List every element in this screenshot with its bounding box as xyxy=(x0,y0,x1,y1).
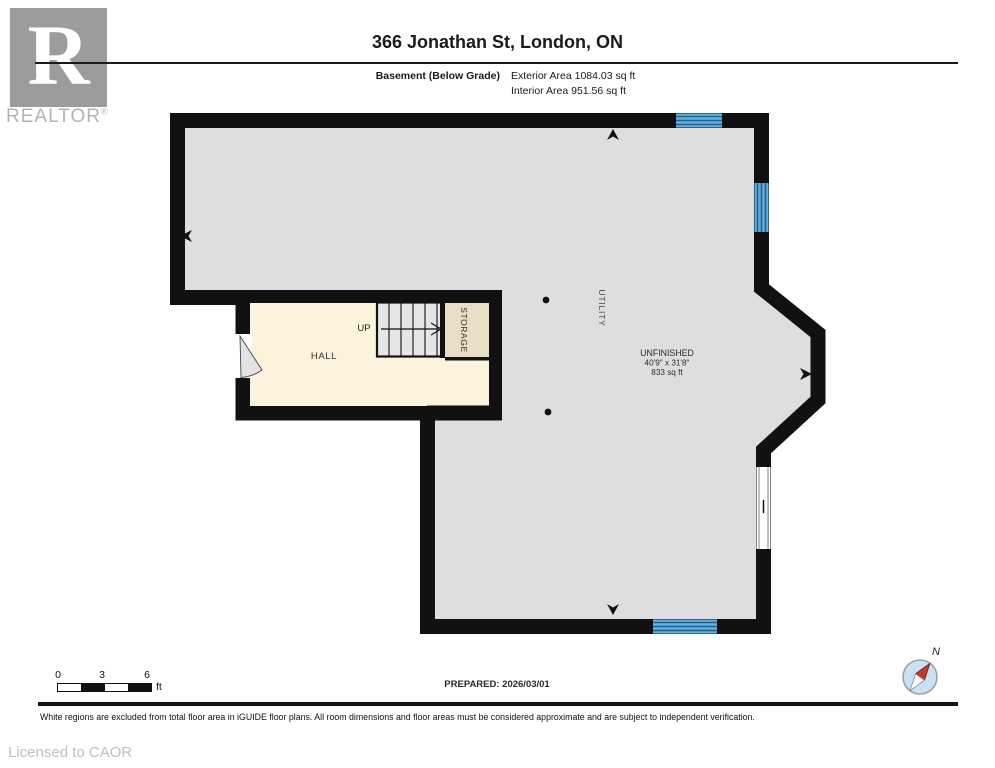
scale-bar xyxy=(57,683,152,692)
scale-unit: ft xyxy=(156,681,162,693)
realtor-logo: R xyxy=(10,8,107,107)
exterior-area: Exterior Area 1084.03 sq ft xyxy=(511,70,635,82)
page-title: 366 Jonathan St, London, ON xyxy=(0,32,995,53)
staircase xyxy=(377,303,447,357)
compass-north-label: N xyxy=(932,646,940,658)
interior-area: Interior Area 951.56 sq ft xyxy=(511,85,626,97)
label-utility: UTILITY xyxy=(597,289,607,326)
scale-segment xyxy=(58,684,81,691)
scale-tick-6: 6 xyxy=(142,669,152,681)
window-right-upper xyxy=(755,183,769,232)
compass: N xyxy=(897,644,947,698)
scale-segment xyxy=(128,684,151,691)
prepared-date: PREPARED: 2026/03/01 xyxy=(397,679,597,690)
realtor-wordmark-text: REALTOR xyxy=(6,106,101,127)
label-unfinished-name: UNFINISHED xyxy=(640,348,694,358)
scale-tick-0: 0 xyxy=(53,669,63,681)
window-right-lower xyxy=(757,467,771,549)
footer-divider xyxy=(38,702,958,706)
label-unfinished-dimensions: 40'9" x 31'8" xyxy=(645,359,690,368)
scale-tick-3: 3 xyxy=(97,669,107,681)
scale-segment xyxy=(81,684,104,691)
disclaimer-text: White regions are excluded from total fl… xyxy=(40,712,955,722)
realtor-logo-r: R xyxy=(27,12,89,98)
header-divider xyxy=(35,62,958,64)
floor-label: Basement (Below Grade) xyxy=(280,70,500,82)
window-bottom xyxy=(653,620,717,634)
hall-right-wall xyxy=(489,290,502,420)
label-hall: HALL xyxy=(311,351,337,362)
label-up: UP xyxy=(357,323,370,334)
support-post xyxy=(543,297,550,304)
support-post xyxy=(545,409,552,416)
hall-bottom-wall xyxy=(427,406,502,421)
license-text: Licensed to CAOR xyxy=(8,744,132,761)
label-unfinished-area: 833 sq ft xyxy=(651,368,683,377)
window-top xyxy=(676,114,722,128)
registered-mark: ® xyxy=(101,107,109,117)
floor-plan-page: UP HALL STORAGE UTILITY UNFINISHED 40'9"… xyxy=(0,0,995,768)
label-storage: STORAGE xyxy=(459,307,469,353)
hall-top-wall xyxy=(243,290,502,303)
floor-plan-drawing: UP HALL STORAGE UTILITY UNFINISHED 40'9"… xyxy=(0,0,995,768)
realtor-wordmark: REALTOR® xyxy=(6,106,109,128)
scale-segment xyxy=(105,684,128,691)
